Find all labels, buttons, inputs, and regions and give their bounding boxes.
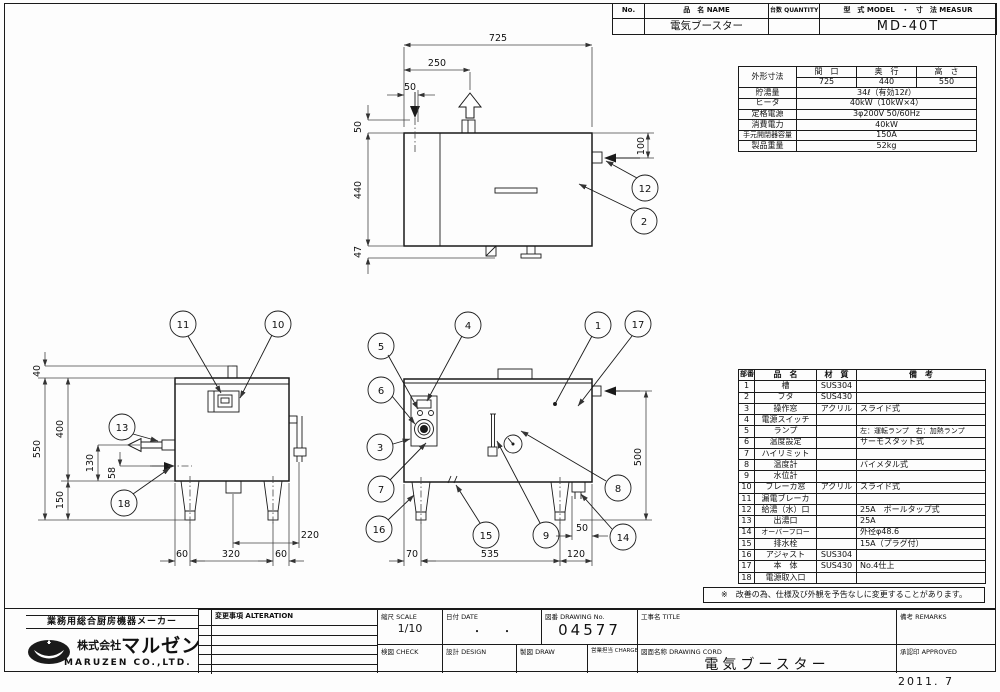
part-name: 電源スイッチ bbox=[755, 415, 817, 426]
drain-stub bbox=[226, 481, 241, 493]
callout-9: 9 bbox=[497, 441, 559, 548]
part-material bbox=[817, 538, 857, 549]
part-num: 8 bbox=[739, 460, 755, 471]
dim-side-pipe: 220 bbox=[301, 530, 319, 541]
design-label: 設計 DESIGN bbox=[446, 646, 486, 656]
part-material: SUS430 bbox=[817, 561, 857, 572]
dim-side-outlet: 130 bbox=[85, 454, 96, 472]
drawing-no-cell: 図番 DRAWING No. 04577 bbox=[541, 609, 637, 644]
part-material bbox=[817, 505, 857, 516]
spec-row-label: 手元開閉器容量 bbox=[739, 130, 797, 141]
part-material: SUS304 bbox=[817, 381, 857, 392]
part-material bbox=[817, 572, 857, 584]
spec-row-value: 34ℓ（有効12ℓ） bbox=[797, 88, 977, 99]
parts-row: 16アジャストSUS304 bbox=[739, 550, 986, 561]
svg-text:4: 4 bbox=[465, 321, 471, 332]
power-switch bbox=[417, 400, 431, 408]
dim-side-body: 400 bbox=[55, 420, 66, 438]
callout-16: 16 bbox=[366, 495, 414, 542]
parts-col-note: 備 考 bbox=[857, 370, 986, 381]
dim-front-leg-span: 535 bbox=[481, 549, 499, 560]
title-block: 業務用総合厨房機器メーカー 株式会社マルゼン MARUZEN CO.,LTD. … bbox=[4, 608, 996, 672]
heat-lamp bbox=[429, 411, 434, 416]
parts-col-num: 部番 bbox=[739, 370, 755, 381]
part-material bbox=[817, 426, 857, 437]
callout-1: 1 bbox=[555, 312, 611, 404]
parts-row: 17本 体SUS430No.4仕上 bbox=[739, 561, 986, 572]
drawing-sheet: 725 250 50 50 440 47 bbox=[0, 0, 1000, 692]
front-view-dimensions: 500 50 70 535 120 bbox=[389, 391, 652, 566]
part-num: 12 bbox=[739, 505, 755, 516]
scale-cell: 縮尺 SCALE 1/10 bbox=[377, 609, 442, 644]
part-name: 出湯口 bbox=[755, 516, 817, 527]
charge-label: 営業担当 CHARGE bbox=[591, 646, 638, 654]
parts-row: 11漏電ブレーカ bbox=[739, 493, 986, 504]
parts-row: 3操作窓アクリルスライド式 bbox=[739, 403, 986, 414]
spec-d: 440 bbox=[857, 77, 917, 88]
approved-cell: 承認印 APPROVED bbox=[896, 644, 996, 673]
part-note: スライド式 bbox=[857, 482, 986, 493]
check-cell: 検図 CHECK bbox=[377, 644, 442, 673]
date-value: ・ ・ bbox=[443, 623, 541, 638]
inlet-arrow-icon bbox=[604, 387, 616, 396]
parts-row: 15排水栓15A（プラグ付） bbox=[739, 538, 986, 549]
part-num: 1 bbox=[739, 381, 755, 392]
parts-col-material: 材 質 bbox=[817, 370, 857, 381]
outlet-fitting bbox=[521, 254, 541, 258]
parts-table: 部番 品 名 材 質 備 考 1槽SUS304 2フタSUS430 3操作窓アク… bbox=[738, 369, 985, 584]
spec-h-label: 高 さ bbox=[917, 67, 977, 78]
parts-row: 9水位計 bbox=[739, 471, 986, 482]
dim-side-leg-left: 60 bbox=[176, 549, 188, 560]
svg-text:3: 3 bbox=[377, 443, 383, 454]
date-stamp: 2011. 7 bbox=[898, 675, 954, 688]
svg-text:15: 15 bbox=[480, 531, 493, 542]
dim-top-inlet-y: 100 bbox=[636, 137, 647, 155]
part-material: SUS304 bbox=[817, 550, 857, 561]
scale-value: 1/10 bbox=[378, 622, 442, 635]
dim-top-drain: 47 bbox=[353, 246, 364, 258]
part-num: 17 bbox=[739, 561, 755, 572]
no-value bbox=[613, 19, 645, 35]
part-name: ランプ bbox=[755, 426, 817, 437]
part-name: 本 体 bbox=[755, 561, 817, 572]
col-no: No. bbox=[613, 4, 645, 19]
svg-text:11: 11 bbox=[177, 320, 190, 331]
part-note bbox=[857, 572, 986, 584]
spec-row-label: 消費電力 bbox=[739, 120, 797, 131]
draw-cell: 製図 DRAW bbox=[516, 644, 587, 673]
part-note bbox=[857, 392, 986, 403]
part-name: ハイリミット bbox=[755, 448, 817, 459]
parts-row: 5ランプ左：運転ランプ 右：加熱ランプ bbox=[739, 426, 986, 437]
part-num: 16 bbox=[739, 550, 755, 561]
alteration-table: 変更事項 ALTERATION bbox=[198, 609, 377, 673]
spec-w: 725 bbox=[797, 77, 857, 88]
part-note: 25A ボールタップ式 bbox=[857, 505, 986, 516]
qty-value bbox=[769, 19, 820, 35]
top-view: 725 250 50 50 440 47 bbox=[353, 33, 658, 274]
dim-side-leg-right: 60 bbox=[275, 549, 287, 560]
scale-label: 縮尺 SCALE bbox=[381, 611, 417, 621]
parts-row: 7ハイリミット bbox=[739, 448, 986, 459]
dim-side-stub: 40 bbox=[32, 365, 43, 377]
run-lamp bbox=[418, 411, 423, 416]
dim-top-width: 725 bbox=[489, 33, 507, 44]
part-num: 4 bbox=[739, 415, 755, 426]
draw-label: 製図 DRAW bbox=[520, 646, 555, 656]
spec-row-value: 40kW bbox=[797, 120, 977, 131]
dim-front-leg-left: 70 bbox=[406, 549, 418, 560]
drawing-no-value: 04577 bbox=[542, 621, 637, 639]
part-material: アクリル bbox=[817, 482, 857, 493]
part-name: 水位計 bbox=[755, 471, 817, 482]
title-cell: 工事名 TITLE bbox=[637, 609, 896, 644]
lid-handle bbox=[498, 369, 532, 379]
part-num: 9 bbox=[739, 471, 755, 482]
svg-text:16: 16 bbox=[373, 525, 386, 536]
svg-text:17: 17 bbox=[632, 320, 645, 331]
dim-top-lid-offset: 250 bbox=[428, 58, 446, 69]
maker-tagline: 業務用総合厨房機器メーカー bbox=[26, 615, 198, 629]
svg-text:8: 8 bbox=[615, 484, 621, 495]
part-note: 外径φ48.6 bbox=[857, 527, 986, 538]
company-name: マルゼン bbox=[121, 635, 201, 657]
callout-13: 13 bbox=[109, 414, 158, 441]
part-material bbox=[817, 493, 857, 504]
col-name: 品 名 NAME bbox=[645, 4, 769, 19]
part-name: ブレーカ窓 bbox=[755, 482, 817, 493]
part-note bbox=[857, 415, 986, 426]
part-num: 2 bbox=[739, 392, 755, 403]
col-model: 型 式 MODEL ・ 寸 法 MEASUR bbox=[820, 4, 997, 19]
dim-top-gap: 50 bbox=[353, 121, 364, 133]
parts-row: 4電源スイッチ bbox=[739, 415, 986, 426]
part-name: フタ bbox=[755, 392, 817, 403]
svg-text:10: 10 bbox=[272, 320, 285, 331]
callout-8: 8 bbox=[521, 431, 631, 501]
part-num: 6 bbox=[739, 437, 755, 448]
dim-side-power: 58 bbox=[107, 467, 118, 479]
part-name: 電源取入口 bbox=[755, 572, 817, 584]
approved-label: 承認印 APPROVED bbox=[900, 646, 957, 656]
parts-row: 6温度設定サーモスタット式 bbox=[739, 437, 986, 448]
parts-row: 10ブレーカ窓アクリルスライド式 bbox=[739, 482, 986, 493]
svg-text:18: 18 bbox=[118, 499, 131, 510]
drawing-name-value: 電気ブースター bbox=[638, 654, 896, 674]
part-material: アクリル bbox=[817, 403, 857, 414]
part-name: 温度計 bbox=[755, 460, 817, 471]
overflow-pipe bbox=[294, 448, 306, 456]
svg-text:14: 14 bbox=[617, 533, 630, 544]
top-view-dimensions: 725 250 50 50 440 47 bbox=[353, 33, 654, 274]
design-cell: 設計 DESIGN bbox=[442, 644, 516, 673]
callout-14: 14 bbox=[581, 494, 636, 550]
part-name: 温度設定 bbox=[755, 437, 817, 448]
callout-4: 4 bbox=[427, 312, 481, 401]
part-num: 18 bbox=[739, 572, 755, 584]
part-num: 7 bbox=[739, 448, 755, 459]
part-num: 5 bbox=[739, 426, 755, 437]
spec-row-label: 貯湯量 bbox=[739, 88, 797, 99]
parts-row: 12給湯（水）口25A ボールタップ式 bbox=[739, 505, 986, 516]
part-name: 給湯（水）口 bbox=[755, 505, 817, 516]
spec-dim-label: 外形寸法 bbox=[739, 67, 797, 88]
svg-text:2: 2 bbox=[641, 217, 647, 228]
dim-side-total: 550 bbox=[32, 440, 43, 458]
spec-w-label: 間 口 bbox=[797, 67, 857, 78]
part-material bbox=[817, 448, 857, 459]
svg-text:5: 5 bbox=[378, 342, 384, 353]
remarks-cell: 備考 REMARKS bbox=[896, 609, 996, 644]
front-view: 500 50 70 535 120 4 bbox=[366, 311, 652, 566]
part-note: 15A（プラグ付） bbox=[857, 538, 986, 549]
company-logo: 株式会社マルゼン bbox=[26, 631, 226, 657]
callout-18: 18 bbox=[111, 468, 170, 516]
drawing-name-cell: 図面名称 DRAWING CORD 電気ブースター bbox=[637, 644, 896, 673]
date-cell: 日付 DATE ・ ・ bbox=[442, 609, 541, 644]
flow-out-arrow-icon bbox=[459, 93, 481, 118]
callout-11: 11 bbox=[170, 311, 221, 393]
part-note: バイメタル式 bbox=[857, 460, 986, 471]
charge-cell: 営業担当 CHARGE bbox=[587, 644, 637, 673]
part-num: 10 bbox=[739, 482, 755, 493]
title-label: 工事名 TITLE bbox=[641, 611, 680, 621]
dim-front-height: 500 bbox=[633, 448, 644, 466]
part-note: No.4仕上 bbox=[857, 561, 986, 572]
part-note bbox=[857, 550, 986, 561]
part-num: 13 bbox=[739, 516, 755, 527]
company-name-en: MARUZEN CO.,LTD. bbox=[64, 658, 192, 668]
parts-row: 18電源取入口 bbox=[739, 572, 986, 584]
part-material bbox=[817, 415, 857, 426]
parts-row: 2フタSUS430 bbox=[739, 392, 986, 403]
svg-text:7: 7 bbox=[378, 485, 384, 496]
water-level-gauge bbox=[488, 447, 497, 456]
part-material: SUS430 bbox=[817, 392, 857, 403]
spec-row-label: 製品重量 bbox=[739, 141, 797, 152]
front-view-outline bbox=[404, 369, 640, 524]
callout-12: 12 bbox=[606, 161, 658, 201]
breaker-window bbox=[208, 391, 239, 412]
spec-row-label: ヒータ bbox=[739, 98, 797, 109]
side-view-outline bbox=[128, 366, 306, 524]
col-qty: 台数 QUANTITY bbox=[769, 4, 820, 19]
part-note: スライド式 bbox=[857, 403, 986, 414]
spec-h: 550 bbox=[917, 77, 977, 88]
title-header-table: No. 品 名 NAME 台数 QUANTITY 型 式 MODEL ・ 寸 法… bbox=[612, 3, 996, 34]
parts-col-name: 品 名 bbox=[755, 370, 817, 381]
part-name: 漏電ブレーカ bbox=[755, 493, 817, 504]
outlet-spout bbox=[162, 440, 175, 450]
callout-10: 10 bbox=[240, 311, 291, 398]
part-note: 25A bbox=[857, 516, 986, 527]
part-name: オーバーフロー bbox=[755, 527, 817, 538]
product-name: 電気ブースター bbox=[645, 19, 769, 35]
spec-row-value: 52kg bbox=[797, 141, 977, 152]
water-inlet-arrow-icon bbox=[604, 154, 616, 163]
check-label: 検図 CHECK bbox=[381, 646, 418, 656]
part-note bbox=[857, 381, 986, 392]
spec-row-label: 定格電源 bbox=[739, 109, 797, 120]
part-material bbox=[817, 516, 857, 527]
drawing-no-label: 図番 DRAWING No. bbox=[545, 611, 605, 621]
part-material bbox=[817, 471, 857, 482]
spec-table: 外形寸法 間 口 奥 行 高 さ 725 440 550 貯湯量34ℓ（有効12… bbox=[738, 66, 976, 152]
part-num: 14 bbox=[739, 527, 755, 538]
part-name: 排水栓 bbox=[755, 538, 817, 549]
callout-6: 6 bbox=[368, 377, 415, 424]
top-view-outline bbox=[404, 92, 640, 258]
parts-row: 1槽SUS304 bbox=[739, 381, 986, 392]
dim-side-leg-span: 320 bbox=[222, 549, 240, 560]
dim-front-overflow: 50 bbox=[576, 523, 588, 534]
model-number: MD-40T bbox=[820, 19, 997, 35]
svg-text:13: 13 bbox=[116, 423, 129, 434]
part-name: アジャスト bbox=[755, 550, 817, 561]
part-material bbox=[817, 437, 857, 448]
dim-top-inlet-x: 50 bbox=[404, 82, 416, 93]
parts-row: 8温度計バイメタル式 bbox=[739, 460, 986, 471]
side-view: 40 550 400 150 130 58 60 bbox=[32, 311, 319, 566]
part-note: サーモスタット式 bbox=[857, 437, 986, 448]
parts-row: 13出湯口25A bbox=[739, 516, 986, 527]
svg-text:9: 9 bbox=[543, 531, 549, 542]
part-name: 槽 bbox=[755, 381, 817, 392]
part-note bbox=[857, 448, 986, 459]
part-num: 11 bbox=[739, 493, 755, 504]
disclaimer-note: ※ 改善の為、仕様及び外観を予告なしに変更することがあります。 bbox=[703, 587, 985, 603]
overflow-fitting bbox=[572, 482, 585, 492]
spec-row-value: 3φ200V 50/60Hz bbox=[797, 109, 977, 120]
remarks-label: 備考 REMARKS bbox=[900, 611, 947, 621]
alteration-label: 変更事項 ALTERATION bbox=[215, 611, 293, 621]
date-label: 日付 DATE bbox=[446, 611, 478, 621]
dim-side-leg: 150 bbox=[55, 491, 66, 509]
spec-row-value: 150A bbox=[797, 130, 977, 141]
part-num: 15 bbox=[739, 538, 755, 549]
part-note bbox=[857, 471, 986, 482]
part-material bbox=[817, 527, 857, 538]
dim-front-leg-right: 120 bbox=[567, 549, 585, 560]
part-note bbox=[857, 493, 986, 504]
svg-text:1: 1 bbox=[595, 321, 601, 332]
callout-15: 15 bbox=[456, 485, 499, 548]
company-prefix: 株式会社 bbox=[77, 639, 121, 652]
part-name: 操作窓 bbox=[755, 403, 817, 414]
part-note: 左：運転ランプ 右：加熱ランプ bbox=[857, 426, 986, 437]
part-num: 3 bbox=[739, 403, 755, 414]
parts-row: 14オーバーフロー外径φ48.6 bbox=[739, 527, 986, 538]
svg-text:12: 12 bbox=[639, 184, 652, 195]
dim-top-depth: 440 bbox=[353, 181, 364, 199]
flow-in-arrow-icon bbox=[410, 106, 420, 118]
part-material bbox=[817, 460, 857, 471]
spec-d-label: 奥 行 bbox=[857, 67, 917, 78]
svg-text:6: 6 bbox=[378, 386, 384, 397]
spec-row-value: 40kW（10kW×4） bbox=[797, 98, 977, 109]
